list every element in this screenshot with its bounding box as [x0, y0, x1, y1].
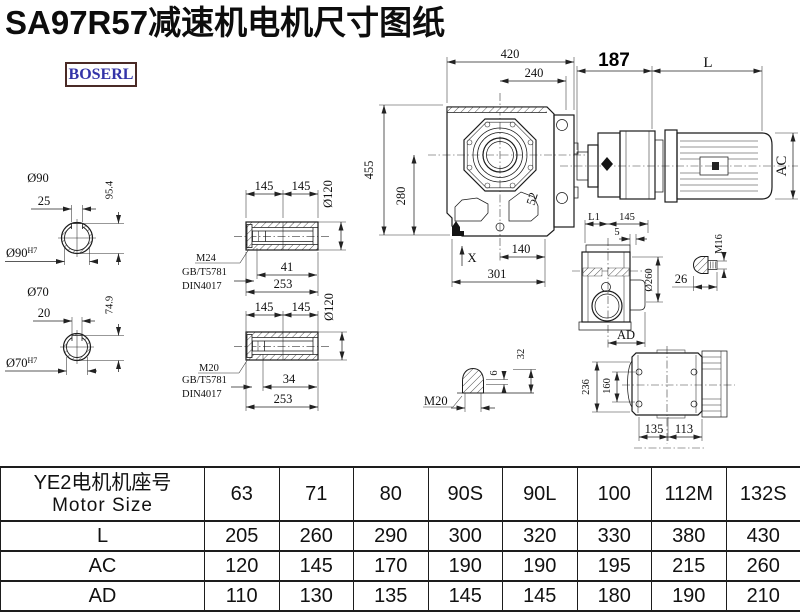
cell: 180 [577, 581, 652, 611]
mount-fins [702, 357, 721, 411]
col-80: 80 [354, 467, 429, 521]
motor-size-table: YE2电机机座号 Motor Size 63 71 80 90S 90L 100… [0, 466, 800, 612]
dim-95-4: 95.4 [105, 180, 116, 199]
dim-280: 280 [394, 187, 408, 206]
dim-5: 5 [614, 227, 619, 238]
bolt-head [694, 257, 709, 274]
cell: 190 [652, 581, 727, 611]
dim-AC: AC [774, 156, 790, 177]
cell: 130 [279, 581, 354, 611]
gearbox-front-view [428, 93, 588, 263]
m16-bolt-detail: M16 26 [672, 234, 727, 291]
dim-AD: AD [617, 328, 635, 342]
cell: 190 [428, 551, 503, 581]
col-90L: 90L [503, 467, 578, 521]
section-diamond-mark [601, 157, 613, 171]
dim-145b: 145 [292, 179, 311, 193]
page: 420 240 455 280 140 301 X 52 [0, 0, 800, 613]
label-din-top: DIN4017 [182, 281, 222, 292]
header-motor-size: YE2电机机座号 Motor Size [1, 467, 205, 521]
cell: 380 [652, 521, 727, 551]
dim-26: 26 [675, 272, 688, 286]
plug-dome [463, 369, 484, 394]
oil-plug [452, 221, 464, 236]
table-header-row: YE2电机机座号 Motor Size 63 71 80 90S 90L 100… [1, 467, 800, 521]
row-label-L: L [1, 521, 205, 551]
col-90S: 90S [428, 467, 503, 521]
label-dia90: Ø90 [27, 171, 49, 185]
dim-dia120-bottom: Ø120 [322, 293, 336, 321]
cell: 145 [279, 551, 354, 581]
cell: 215 [652, 551, 727, 581]
gearbox-side-view: L1 145 5 Ø260 AD [572, 212, 663, 350]
brand-logo-text: BOSERL [69, 66, 134, 84]
cell: 205 [205, 521, 280, 551]
brand-logo: BOSERL [65, 62, 137, 87]
dim-dia260: Ø260 [644, 268, 655, 291]
page-title: SA97R57减速机电机尺寸图纸 [5, 0, 445, 44]
cell: 430 [726, 521, 800, 551]
label-bore70: Ø70H7 [6, 356, 37, 370]
dim-L1: L1 [588, 212, 600, 223]
washer [247, 225, 252, 248]
dim-x: X [467, 251, 476, 265]
dim-455: 455 [362, 161, 376, 180]
cell: 110 [205, 581, 280, 611]
dim-L: L [703, 55, 712, 71]
col-132S: 132S [726, 467, 800, 521]
hollow-shaft-bottom: 145 145 Ø120 M20 GB/T5781 DIN4017 34 253 [182, 293, 347, 411]
m20-plug-detail: M20 6 32 [423, 349, 536, 412]
label-bore90: Ø90H7 [6, 246, 37, 260]
label-din-bottom: DIN4017 [182, 389, 222, 400]
dim-dia120-top: Ø120 [321, 180, 335, 208]
label-m20-plug: M20 [424, 394, 448, 408]
dim-240: 240 [525, 66, 544, 80]
header-cn: YE2电机机座号 [1, 471, 204, 496]
cell: 145 [503, 581, 578, 611]
table-row-AD: AD 110 130 135 145 145 180 190 210 [1, 581, 800, 611]
dim-187: 187 [598, 50, 630, 71]
gearbox-front-dimensions: 420 240 455 280 140 301 X 52 [362, 47, 574, 287]
dim-6: 6 [489, 370, 500, 375]
dim-145a: 145 [255, 179, 274, 193]
table-row-AC: AC 120 145 170 190 190 195 215 260 [1, 551, 800, 581]
cell: 320 [503, 521, 578, 551]
motor-nameplate [712, 162, 719, 170]
dim-145e: 145 [619, 212, 635, 223]
dim-253-bottom: 253 [274, 392, 293, 406]
dim-145c: 145 [255, 300, 274, 314]
dim-41: 41 [281, 260, 294, 274]
dim-236: 236 [581, 379, 592, 395]
dim-113: 113 [675, 422, 693, 436]
cell: 170 [354, 551, 429, 581]
label-m16: M16 [714, 234, 725, 254]
cell: 120 [205, 551, 280, 581]
label-m20: M20 [199, 363, 219, 374]
cell: 145 [428, 581, 503, 611]
gearbox-bottom-view: 236 160 135 113 [581, 346, 735, 448]
dim-145d: 145 [292, 300, 311, 314]
hollow-shaft-top: 145 145 Ø120 M24 GB/T5781 DIN4017 41 253 [182, 179, 346, 296]
label-gbt-top: GB/T5781 [182, 267, 227, 278]
label-gbt-bottom: GB/T5781 [182, 375, 227, 386]
label-dia70: Ø70 [27, 285, 49, 299]
dim-253-top: 253 [274, 277, 293, 291]
row-label-AC: AC [1, 551, 205, 581]
cell: 135 [354, 581, 429, 611]
cell: 190 [503, 551, 578, 581]
dim-34: 34 [283, 372, 296, 386]
col-63: 63 [205, 467, 280, 521]
cell: 300 [428, 521, 503, 551]
dim-20: 20 [38, 306, 51, 320]
col-71: 71 [279, 467, 354, 521]
col-112M: 112M [652, 467, 727, 521]
table-row-L: L 205 260 290 300 320 330 380 430 [1, 521, 800, 551]
motor-assembly [560, 130, 798, 202]
motor-dimensions: 187 L AC [577, 50, 798, 199]
dim-135: 135 [645, 422, 664, 436]
dim-160: 160 [602, 378, 613, 394]
dim-25: 25 [38, 194, 51, 208]
shaft-section-90: Ø90 25 95.4 Ø90H7 [5, 171, 124, 265]
dim-301: 301 [488, 267, 507, 281]
cell: 290 [354, 521, 429, 551]
dim-52: 52 [524, 191, 541, 207]
washer [247, 335, 252, 358]
col-100: 100 [577, 467, 652, 521]
row-label-AD: AD [1, 581, 205, 611]
shaft-section-70: Ø70 20 74.9 Ø70H7 [5, 285, 124, 375]
dim-140: 140 [512, 242, 531, 256]
label-m24: M24 [196, 253, 217, 264]
header-en: Motor Size [1, 496, 204, 517]
cell: 330 [577, 521, 652, 551]
cell: 260 [726, 551, 800, 581]
cell: 260 [279, 521, 354, 551]
dim-32: 32 [516, 349, 527, 360]
dim-74-9: 74.9 [105, 296, 116, 314]
cell: 195 [577, 551, 652, 581]
dim-420: 420 [501, 47, 520, 61]
cell: 210 [726, 581, 800, 611]
